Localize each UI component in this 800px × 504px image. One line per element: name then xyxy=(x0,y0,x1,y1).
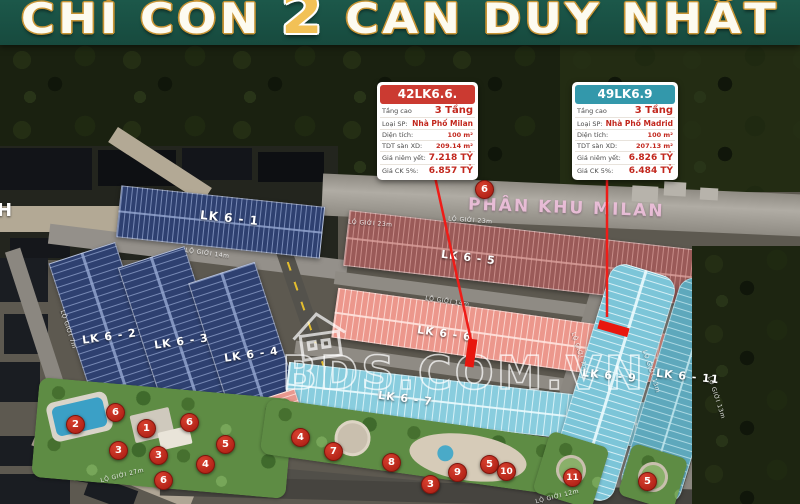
card-row-label: TDT sàn XD: xyxy=(577,142,617,150)
amenity-badge: 7 xyxy=(324,442,343,461)
card-row-label: Giá CK 5%: xyxy=(382,167,418,175)
card-title: 42LK6.6. xyxy=(380,85,475,104)
card-row-label: Tầng cao xyxy=(382,107,412,115)
cutoff-letter-left-edge: H xyxy=(0,200,12,221)
card-row-value: 6.484 TỶ xyxy=(629,166,673,176)
card-row-label: Loại SP: xyxy=(382,120,408,128)
promo-banner-text: CHỈ CÒN 2 CĂN DUY NHẤT xyxy=(0,0,800,45)
amenity-badge: 10 xyxy=(497,462,516,481)
amenity-badge: 6 xyxy=(475,180,494,199)
amenity-badge: 9 xyxy=(448,463,467,482)
lot-info-card-42lk6-6: 42LK6.6. Tầng cao3 Tầng Loại SP:Nhà Phố … xyxy=(377,82,478,180)
amenity-badge: 6 xyxy=(154,471,173,490)
amenity-badge: 11 xyxy=(563,468,582,487)
amenity-badge: 4 xyxy=(291,428,310,447)
card-row-value: Nhà Phố Milan xyxy=(412,119,473,128)
building-top-right-3 xyxy=(700,188,719,201)
card-row-label: Diện tích: xyxy=(577,131,608,139)
card-row-value: 3 Tầng xyxy=(435,105,473,116)
amenity-badge: 2 xyxy=(66,415,85,434)
card-row-value: 207.13 m² xyxy=(636,142,673,150)
card-row-value: 7.218 TỶ xyxy=(429,153,473,163)
card-row-value: 6.857 TỶ xyxy=(429,166,473,176)
amenity-badge: 8 xyxy=(382,453,401,472)
card-row-label: Giá niêm yết: xyxy=(382,154,426,162)
watermark-text: BDS.COM.VN xyxy=(282,346,646,400)
masterplan-screenshot: LỘ GIỚI 23m LỘ GIỚI 23m LỘ GIỚI 14m LỘ G… xyxy=(0,0,800,504)
card-row-label: Diện tích: xyxy=(382,131,413,139)
amenity-badge: 6 xyxy=(106,403,125,422)
banner-suffix: CĂN DUY NHẤT xyxy=(345,0,779,43)
card-row-value: 6.826 TỶ xyxy=(629,153,673,163)
card-row-label: Tầng cao xyxy=(577,107,607,115)
amenity-badge: 3 xyxy=(149,446,168,465)
card-row-label: TDT sàn XD: xyxy=(382,142,422,150)
amenity-badge: 3 xyxy=(109,441,128,460)
amenity-badge: 5 xyxy=(216,435,235,454)
card-row-label: Giá niêm yết: xyxy=(577,154,621,162)
card-title: 49LK6.9 xyxy=(575,85,675,104)
card-row-value: 3 Tầng xyxy=(635,105,673,116)
building-top-right-2 xyxy=(664,181,687,196)
amenity-badge: 6 xyxy=(180,413,199,432)
banner-highlight-number: 2 xyxy=(281,0,326,45)
amenity-badge: 1 xyxy=(137,419,156,438)
card-row-label: Giá CK 5%: xyxy=(577,167,613,175)
lot-info-card-49lk6-9: 49LK6.9 Tầng cao3 Tầng Loại SP:Nhà Phố M… xyxy=(572,82,678,180)
card-row-value: 100 m² xyxy=(448,131,473,139)
card-row-value: 100 m² xyxy=(648,131,673,139)
amenity-badge: 3 xyxy=(421,475,440,494)
card-row-value: Nhà Phố Madrid xyxy=(606,119,673,128)
amenity-badge: 4 xyxy=(196,455,215,474)
card-row-value: 209.14 m² xyxy=(436,142,473,150)
promo-banner: CHỈ CÒN 2 CĂN DUY NHẤT xyxy=(0,0,800,45)
card-row-label: Loại SP: xyxy=(577,120,603,128)
amenity-badge: 5 xyxy=(638,472,657,491)
banner-prefix: CHỈ CÒN xyxy=(21,0,262,43)
